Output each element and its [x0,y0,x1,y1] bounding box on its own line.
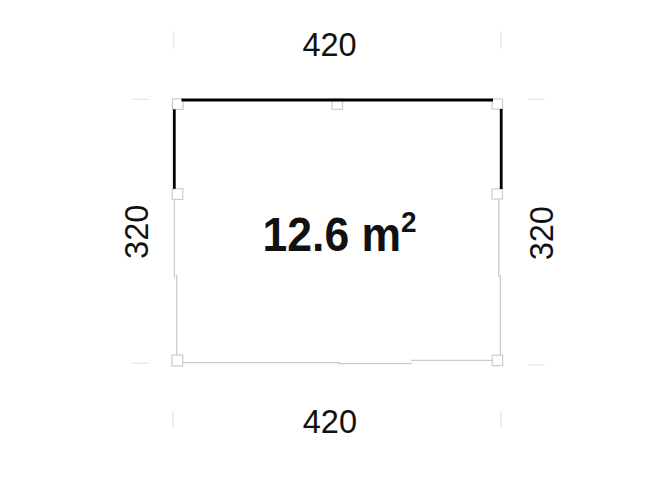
svg-text:12.6 m2: 12.6 m2 [263,205,417,261]
svg-text:320: 320 [524,206,560,260]
svg-text:420: 420 [302,27,356,63]
svg-text:320: 320 [119,205,155,259]
svg-text:420: 420 [303,404,357,440]
